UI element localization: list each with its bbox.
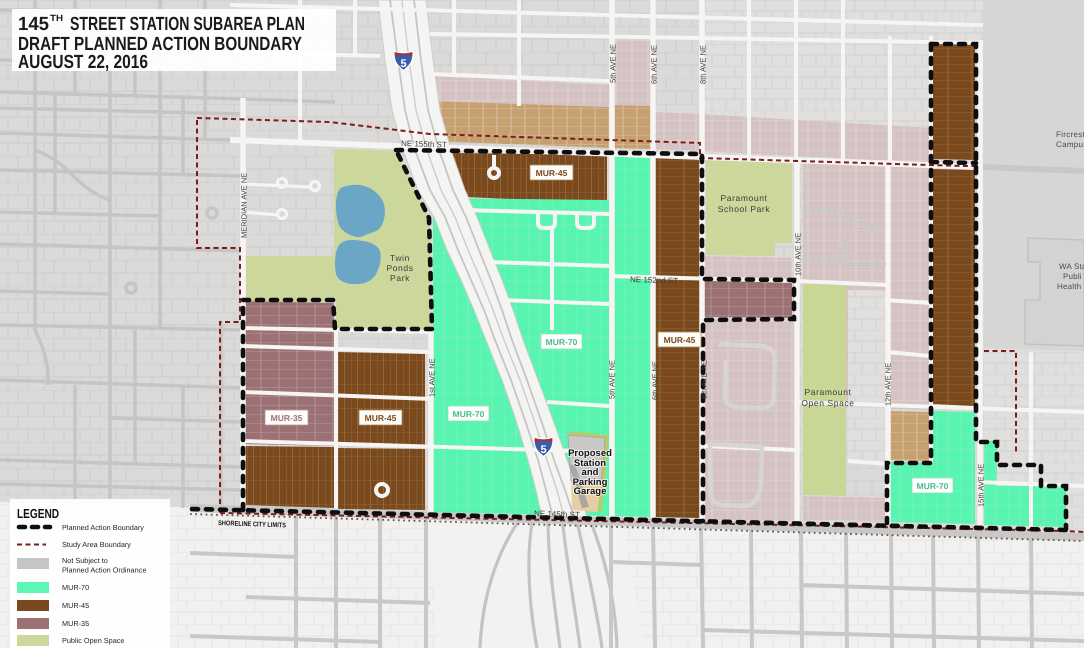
svg-text:Park: Park — [390, 273, 410, 283]
svg-text:15th AVE NE: 15th AVE NE — [977, 464, 986, 507]
svg-text:NE 152nd ST: NE 152nd ST — [630, 275, 678, 286]
svg-text:Open Space: Open Space — [801, 398, 854, 408]
svg-text:WA Sta: WA Sta — [1059, 262, 1084, 271]
svg-text:5th AVE NE: 5th AVE NE — [609, 44, 618, 83]
svg-text:145: 145 — [18, 14, 49, 35]
svg-text:Planned Action Ordinance: Planned Action Ordinance — [62, 566, 146, 575]
svg-text:NE 145th ST: NE 145th ST — [534, 509, 580, 519]
svg-text:Not Subject to: Not Subject to — [62, 556, 108, 565]
svg-text:Twin: Twin — [390, 253, 410, 263]
svg-text:School Park: School Park — [718, 204, 771, 214]
svg-text:MUR-45: MUR-45 — [62, 601, 89, 610]
svg-text:5: 5 — [540, 444, 546, 456]
svg-text:NE 155th ST: NE 155th ST — [401, 139, 447, 149]
svg-text:MUR-35: MUR-35 — [271, 413, 303, 423]
svg-text:Health: Health — [1057, 282, 1081, 291]
svg-text:MUR-70: MUR-70 — [62, 583, 89, 592]
svg-text:MUR-70: MUR-70 — [453, 409, 485, 419]
svg-text:MERIDIAN AVE NE: MERIDIAN AVE NE — [240, 173, 249, 238]
svg-text:Paramount: Paramount — [805, 387, 852, 397]
svg-text:Publi: Publi — [1063, 272, 1082, 281]
svg-text:8th AVE NE: 8th AVE NE — [699, 45, 708, 84]
svg-text:MUR-45: MUR-45 — [365, 413, 397, 423]
svg-text:MUR-45: MUR-45 — [536, 168, 568, 178]
svg-text:MUR-70: MUR-70 — [917, 481, 949, 491]
svg-text:MUR-35: MUR-35 — [62, 619, 89, 628]
svg-text:Planned Action Boundary: Planned Action Boundary — [62, 523, 144, 532]
svg-text:LEGEND: LEGEND — [17, 506, 59, 521]
svg-text:AUGUST 22, 2016: AUGUST 22, 2016 — [18, 52, 148, 73]
svg-text:STREET STATION SUBAREA PLAN: STREET STATION SUBAREA PLAN — [70, 14, 305, 35]
svg-text:Fircrest: Fircrest — [1056, 130, 1084, 139]
svg-text:12th AVE NE: 12th AVE NE — [884, 363, 893, 406]
svg-text:Public Open Space: Public Open Space — [62, 636, 124, 645]
svg-text:10th AVE NE: 10th AVE NE — [794, 233, 803, 276]
svg-text:MUR-70: MUR-70 — [546, 337, 578, 347]
svg-text:6th AVE NE: 6th AVE NE — [651, 361, 660, 400]
svg-text:Study Area Boundary: Study Area Boundary — [62, 540, 131, 549]
svg-text:TH: TH — [50, 13, 63, 23]
svg-text:5th AVE NE: 5th AVE NE — [608, 360, 617, 399]
svg-text:Paramount: Paramount — [721, 193, 768, 203]
svg-text:1st AVE NE: 1st AVE NE — [428, 358, 437, 397]
svg-text:Campus: Campus — [1056, 140, 1084, 149]
svg-text:Garage: Garage — [574, 486, 607, 497]
svg-text:MUR-45: MUR-45 — [664, 335, 696, 345]
svg-text:Ponds: Ponds — [386, 263, 413, 273]
svg-text:8th AVE NE: 8th AVE NE — [700, 360, 709, 399]
svg-text:5: 5 — [400, 58, 406, 70]
svg-text:6th AVE NE: 6th AVE NE — [650, 45, 659, 84]
